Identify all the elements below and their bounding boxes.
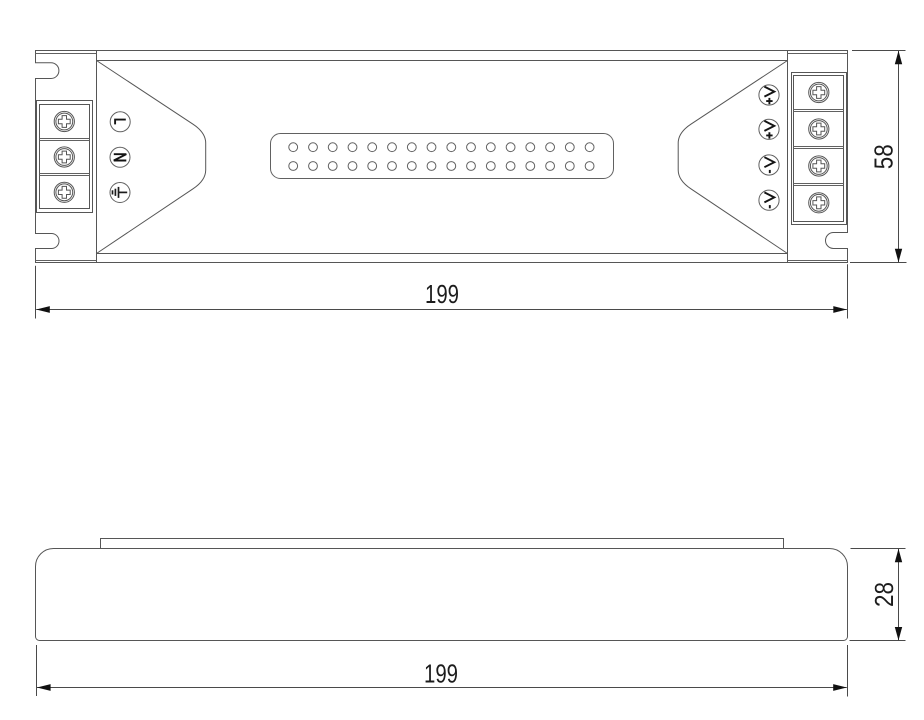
- svg-text:58: 58: [869, 144, 899, 169]
- svg-text:28: 28: [869, 582, 899, 607]
- svg-text:199: 199: [425, 279, 459, 309]
- svg-text:199: 199: [424, 658, 458, 688]
